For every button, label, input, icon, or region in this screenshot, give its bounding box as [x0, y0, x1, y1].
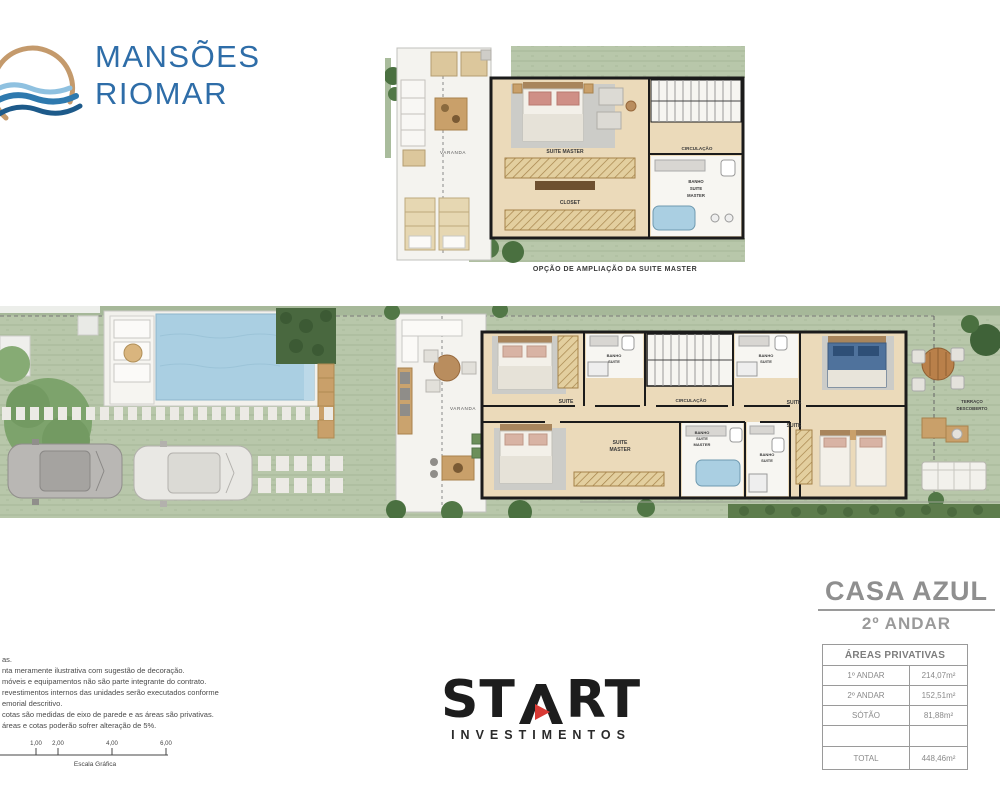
- building-edge: [0, 306, 100, 313]
- row-label: [823, 726, 910, 747]
- scale-caption: Escala Gráfica: [74, 761, 117, 768]
- table-row-total: TOTAL 448,46m²: [823, 747, 968, 770]
- shower-head: [711, 214, 719, 222]
- table-row: 2º ANDAR 152,51m²: [823, 686, 968, 706]
- unit-title-block: CASA AZUL 2º ANDAR: [818, 576, 995, 634]
- row-value: 81,88m²: [910, 706, 968, 726]
- room-label-banho-bottom: BANHO: [760, 452, 775, 457]
- bush: [502, 241, 524, 263]
- disclaimer-line: áreas e cotas poderão sofrer alteração d…: [2, 720, 219, 731]
- armchair: [597, 112, 621, 129]
- scale-tick: 1,00: [30, 741, 42, 747]
- bathtub: [653, 206, 695, 230]
- row-label: 1º ANDAR: [823, 666, 910, 686]
- room-label-banho: SUITE: [690, 186, 703, 191]
- varanda-deck: VARANDA: [397, 48, 491, 260]
- room-label-banho-bottom: SUITE: [761, 458, 773, 463]
- table-row: 1º ANDAR 214,07m²: [823, 666, 968, 686]
- brand-logo: MANSÕES RIOMAR: [0, 22, 340, 142]
- room-label-closet: CLOSET: [560, 200, 580, 206]
- graphic-scale: 1,00 2,00 4,00 6,00 Escala Gráfica: [0, 736, 190, 776]
- varanda-main: VARANDA: [396, 314, 486, 512]
- wood-walk: [318, 364, 334, 438]
- disclaimer-line: móveis e equipamentos não são parte inte…: [2, 676, 219, 687]
- lawn-strip-top: [511, 46, 745, 78]
- toilet: [721, 160, 735, 176]
- brand-name: MANSÕES RIOMAR: [95, 38, 261, 112]
- suite-1: [492, 336, 578, 394]
- room-label-suite-master: SUITE MASTER: [546, 149, 584, 155]
- table-row-empty: [823, 726, 968, 747]
- brand-name-line2: RIOMAR: [95, 75, 261, 112]
- closet-wardrobe: [505, 210, 635, 230]
- room-label-suite3: SUITE: [787, 423, 802, 429]
- row-label: SÓTÃO: [823, 706, 910, 726]
- suite-3: [796, 430, 886, 486]
- room-label-banho-top2: BANHO: [759, 353, 774, 358]
- suite-2: [822, 336, 894, 390]
- disclaimer-line: cotas são medidas de eixo de parede e as…: [2, 709, 219, 720]
- start-letter-a-with-play-icon: [518, 684, 564, 724]
- suite-master-block: SUITE MASTER CLOSET CIRCULAÇÃO BANHO S: [491, 78, 743, 238]
- house-2nd-floor: SUITE BANHO SUITE CIRCULAÇÃO BANHO SUITE…: [482, 332, 906, 498]
- unit-floor: 2º ANDAR: [818, 614, 995, 634]
- developer-subtitle: INVESTIMENTOS: [436, 728, 646, 742]
- car-white: [134, 441, 252, 507]
- plant: [961, 315, 979, 333]
- areas-table-header: ÁREAS PRIVATIVAS: [823, 645, 968, 666]
- unit-name: CASA AZUL: [818, 576, 995, 611]
- developer-wordmark: ST RT: [436, 676, 646, 724]
- room-label-varanda: VARANDA: [450, 406, 476, 411]
- room-label-varanda: VARANDA: [440, 150, 466, 155]
- brand-name-line1: MANSÕES: [95, 38, 261, 75]
- room-label-circulacao: CIRCULAÇÃO: [682, 145, 713, 151]
- closet-island: [535, 181, 595, 190]
- disclaimer-line: revestimentos internos das unidades serã…: [2, 687, 219, 698]
- main-floorplan-2nd-floor: VARANDA: [0, 306, 1000, 518]
- row-label: TOTAL: [823, 747, 910, 770]
- row-value: [910, 726, 968, 747]
- side-unit: [922, 418, 946, 438]
- armchair: [599, 88, 623, 105]
- vanity: [655, 160, 705, 171]
- bed-headboard: [523, 82, 583, 89]
- disclaimer-line: emorial descritivo.: [2, 698, 219, 709]
- paver: [78, 316, 98, 335]
- row-value: 214,07m²: [910, 666, 968, 686]
- room-label-banho-master: MASTER: [694, 442, 711, 447]
- scale-tick: 6,00: [160, 741, 172, 747]
- start-letters-rt: RT: [566, 676, 641, 724]
- room-label-suite-master: SUITE: [613, 440, 628, 446]
- legal-disclaimer: as. nta meramente ilustrativa com sugest…: [2, 654, 219, 731]
- room-label-banho-master: BANHO: [695, 430, 710, 435]
- disclaimer-line: nta meramente ilustrativa com sugestão d…: [2, 665, 219, 676]
- developer-logo: ST RT INVESTIMENTOS: [436, 676, 646, 742]
- room-label-banho-top1: SUITE: [608, 359, 620, 364]
- brochure-page: MANSÕES RIOMAR: [0, 0, 1000, 800]
- room-label-suite-master: MASTER: [609, 447, 631, 453]
- row-label: 2º ANDAR: [823, 686, 910, 706]
- row-value: 448,46m²: [910, 747, 968, 770]
- start-letters-st: ST: [441, 676, 516, 724]
- room-label-suite1: SUITE: [559, 399, 574, 405]
- top-plan-caption: OPÇÃO DE AMPLIAÇÃO DA SUITE MASTER: [460, 266, 770, 273]
- closet-wardrobe: [505, 158, 635, 178]
- stairs: [647, 334, 733, 386]
- room-label-banho-top2: SUITE: [760, 359, 772, 364]
- table-row: SÓTÃO 81,88m²: [823, 706, 968, 726]
- umbrella: [124, 344, 142, 362]
- riomar-wave-circle-icon: [0, 30, 92, 140]
- room-label-banho: BANHO: [688, 179, 704, 184]
- hedge-top: [276, 308, 336, 364]
- top-floorplan-suite-master-option: VARANDA SUITE MASTER CLOSET: [385, 42, 745, 264]
- areas-table-header-row: ÁREAS PRIVATIVAS: [823, 645, 968, 666]
- scale-tick: 2,00: [52, 741, 64, 747]
- room-label-terraco: DESCOBERTO: [957, 406, 988, 411]
- room-label-terraco: TERRAÇO: [961, 399, 983, 404]
- areas-table: ÁREAS PRIVATIVAS 1º ANDAR 214,07m² 2º AN…: [822, 644, 968, 770]
- room-label-banho: MASTER: [687, 193, 705, 198]
- disclaimer-line: as.: [2, 654, 219, 665]
- row-value: 152,51m²: [910, 686, 968, 706]
- car-gray: [8, 439, 122, 505]
- room-label-banho-master: SUITE: [696, 436, 708, 441]
- shower-head: [725, 214, 733, 222]
- room-label-circulacao: CIRCULAÇÃO: [676, 397, 707, 403]
- room-label-suite2: SUITE: [787, 400, 802, 406]
- room-label-banho-top1: BANHO: [607, 353, 622, 358]
- scale-tick: 4,00: [106, 741, 118, 747]
- bathtub: [696, 460, 740, 486]
